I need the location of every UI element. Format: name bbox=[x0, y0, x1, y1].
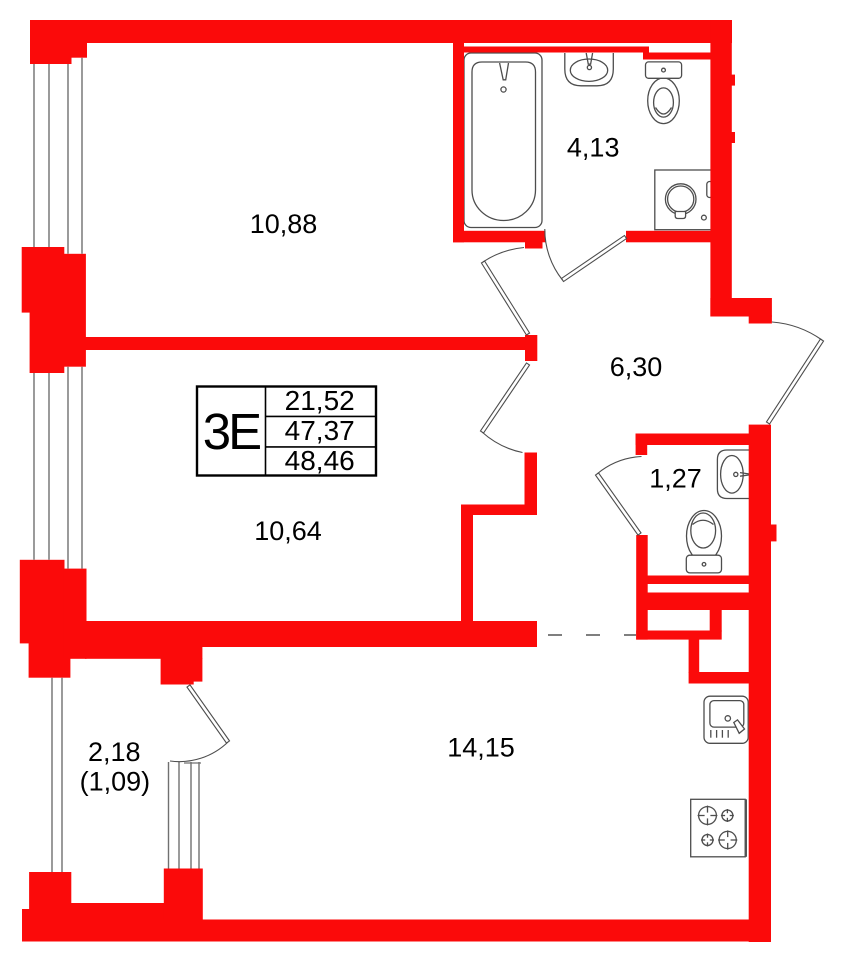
svg-text:21,52: 21,52 bbox=[285, 385, 355, 416]
svg-text:10,88: 10,88 bbox=[250, 209, 318, 239]
svg-text:2,18: 2,18 bbox=[88, 737, 141, 767]
svg-text:10,64: 10,64 bbox=[254, 516, 322, 546]
svg-text:47,37: 47,37 bbox=[285, 415, 355, 446]
svg-text:6,30: 6,30 bbox=[610, 352, 663, 382]
svg-text:14,15: 14,15 bbox=[447, 733, 515, 763]
svg-text:(1,09): (1,09) bbox=[80, 767, 151, 797]
svg-text:48,46: 48,46 bbox=[285, 445, 355, 476]
svg-text:1,27: 1,27 bbox=[649, 464, 702, 494]
svg-text:3Е: 3Е bbox=[203, 403, 260, 460]
svg-text:4,13: 4,13 bbox=[567, 133, 620, 163]
